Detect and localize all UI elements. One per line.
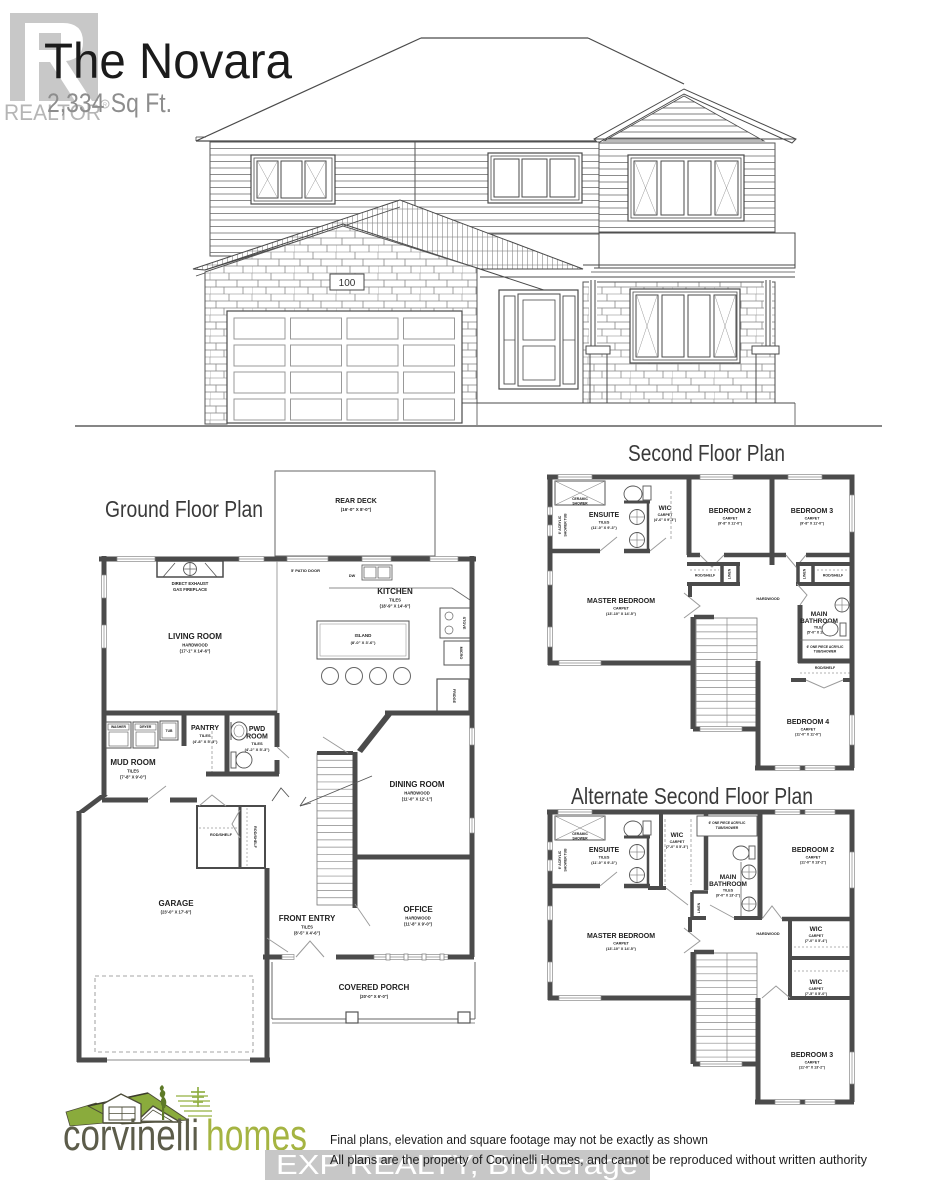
- svg-text:WASHER: WASHER: [111, 725, 126, 729]
- svg-text:ROD/SHELF: ROD/SHELF: [210, 833, 233, 837]
- svg-text:TILES: TILES: [599, 856, 610, 860]
- svg-text:BATHROOM: BATHROOM: [709, 881, 747, 888]
- svg-text:(11'-0" X 11'-0"): (11'-0" X 11'-0"): [795, 733, 822, 737]
- svg-text:TUB/SHOWER: TUB/SHOWER: [814, 650, 837, 654]
- svg-text:(11'-0" X 9'-3"): (11'-0" X 9'-3"): [591, 526, 617, 530]
- svg-text:DRYER: DRYER: [140, 725, 152, 729]
- svg-text:COVERED PORCH: COVERED PORCH: [339, 983, 410, 992]
- svg-text:MUD ROOM: MUD ROOM: [110, 758, 156, 767]
- svg-text:MASTER BEDROOM: MASTER BEDROOM: [587, 933, 655, 940]
- svg-text:TILES: TILES: [599, 521, 610, 525]
- svg-text:The Novara: The Novara: [44, 33, 292, 89]
- svg-text:CERAMIC: CERAMIC: [572, 832, 588, 836]
- svg-text:PWD: PWD: [249, 726, 265, 733]
- svg-text:100: 100: [339, 278, 356, 289]
- svg-text:(11'-8" X 9'-0"): (11'-8" X 9'-0"): [404, 922, 433, 927]
- svg-text:WIC: WIC: [810, 979, 823, 986]
- svg-text:ENSUITE: ENSUITE: [589, 847, 620, 854]
- svg-text:HARDWOOD: HARDWOOD: [182, 643, 208, 648]
- svg-text:ROD/SHELF: ROD/SHELF: [815, 666, 836, 670]
- svg-text:BEDROOM 2: BEDROOM 2: [792, 847, 835, 854]
- svg-text:Second Floor Plan: Second Floor Plan: [628, 440, 785, 466]
- svg-text:(11'-0" X 12'-1"): (11'-0" X 12'-1"): [402, 797, 433, 802]
- svg-text:5' PATIO DOOR: 5' PATIO DOOR: [291, 568, 320, 573]
- svg-text:(7'-8" X 9'-0"): (7'-8" X 9'-0"): [120, 775, 147, 780]
- svg-text:(9'-0" X 13'-2"): (9'-0" X 13'-2"): [716, 894, 741, 898]
- svg-text:(11'-0" X 9'-3"): (11'-0" X 9'-3"): [591, 861, 617, 865]
- svg-text:CARPET: CARPET: [613, 942, 629, 946]
- svg-text:6' ONE PIECE ACRYLIC: 6' ONE PIECE ACRYLIC: [807, 645, 844, 649]
- svg-text:REAR DECK: REAR DECK: [335, 498, 377, 505]
- svg-text:TILES: TILES: [199, 733, 211, 738]
- svg-text:ROD/SHELF: ROD/SHELF: [253, 826, 257, 849]
- svg-text:BEDROOM 4: BEDROOM 4: [787, 719, 830, 726]
- svg-text:(7'-0" X 5'-3"): (7'-0" X 5'-3"): [666, 845, 689, 849]
- svg-text:MAIN: MAIN: [811, 611, 828, 618]
- svg-text:WIC: WIC: [810, 926, 823, 933]
- svg-text:HARDWOOD: HARDWOOD: [756, 597, 779, 601]
- svg-text:(7'-5" X 5'-0"): (7'-5" X 5'-0"): [805, 992, 828, 996]
- svg-text:TILES: TILES: [251, 741, 263, 746]
- svg-text:CARPET: CARPET: [805, 1061, 821, 1065]
- svg-text:BEDROOM 3: BEDROOM 3: [791, 508, 834, 515]
- svg-text:(18'-9" X 14'-6"): (18'-9" X 14'-6"): [380, 604, 411, 609]
- svg-text:CARPET: CARPET: [613, 607, 629, 611]
- svg-text:TILES: TILES: [127, 769, 139, 774]
- svg-text:(13'-10" X 14'-5"): (13'-10" X 14'-5"): [606, 947, 637, 951]
- svg-text:(7'-0" X 5'-4"): (7'-0" X 5'-4"): [805, 939, 828, 943]
- svg-text:TUB/SHOWER: TUB/SHOWER: [716, 826, 739, 830]
- svg-text:CARPET: CARPET: [809, 987, 825, 991]
- svg-text:LINEN: LINEN: [728, 568, 732, 579]
- svg-text:Final plans, elevation and squ: Final plans, elevation and square footag…: [330, 1132, 708, 1147]
- svg-text:CARPET: CARPET: [806, 856, 822, 860]
- svg-text:ROD/SHELF: ROD/SHELF: [695, 574, 716, 578]
- svg-text:SHOWER TUB: SHOWER TUB: [564, 513, 568, 537]
- svg-text:FRIDGE: FRIDGE: [452, 689, 456, 704]
- svg-text:(9'-8" X 11'-0"): (9'-8" X 11'-0"): [718, 522, 743, 526]
- svg-text:Alternate Second Floor Plan: Alternate Second Floor Plan: [571, 783, 813, 809]
- svg-text:CARPET: CARPET: [801, 728, 817, 732]
- svg-text:SHOWER TUB: SHOWER TUB: [564, 848, 568, 872]
- svg-text:(23'-0" X 17'-6"): (23'-0" X 17'-6"): [161, 910, 192, 915]
- svg-text:GAS FIREPLACE: GAS FIREPLACE: [173, 587, 207, 592]
- svg-text:(13'-10" X 14'-5"): (13'-10" X 14'-5"): [606, 612, 637, 616]
- svg-text:HARDWOOD: HARDWOOD: [756, 932, 779, 936]
- svg-text:(4'-8" X 5'-3"): (4'-8" X 5'-3"): [193, 739, 218, 744]
- svg-text:(4'-6" X 9'-3"): (4'-6" X 9'-3"): [654, 518, 677, 522]
- svg-text:ISLAND: ISLAND: [355, 633, 373, 638]
- svg-text:DINING ROOM: DINING ROOM: [389, 780, 444, 789]
- svg-text:TUB: TUB: [166, 729, 174, 733]
- svg-text:MASTER BEDROOM: MASTER BEDROOM: [587, 598, 655, 605]
- svg-text:TILES: TILES: [723, 889, 734, 893]
- svg-text:(8'-5" X 4'-6"): (8'-5" X 4'-6"): [294, 931, 321, 936]
- svg-text:(4'-2" X 5'-3"): (4'-2" X 5'-3"): [245, 747, 270, 752]
- svg-text:6' ONE PIECE ACRYLIC: 6' ONE PIECE ACRYLIC: [709, 821, 746, 825]
- svg-text:HARDWOOD: HARDWOOD: [404, 791, 430, 796]
- svg-text:ENSUITE: ENSUITE: [589, 512, 620, 519]
- svg-text:CARPET: CARPET: [809, 934, 825, 938]
- svg-text:(11'-0" X 13'-2"): (11'-0" X 13'-2"): [799, 1066, 826, 1070]
- svg-text:CARPET: CARPET: [723, 517, 739, 521]
- svg-text:CARPET: CARPET: [670, 840, 686, 844]
- svg-text:WIC: WIC: [659, 505, 672, 512]
- svg-text:KITCHEN: KITCHEN: [377, 587, 413, 596]
- svg-text:TILES: TILES: [389, 598, 401, 603]
- svg-text:(9'-8" X 11'-0"): (9'-8" X 11'-0"): [800, 522, 825, 526]
- svg-text:LINEN: LINEN: [697, 902, 701, 913]
- svg-text:OFFICE: OFFICE: [403, 905, 433, 914]
- svg-text:(8'-0" X 3'-6"): (8'-0" X 3'-6"): [351, 640, 376, 645]
- svg-text:6' ACRYLIC: 6' ACRYLIC: [558, 850, 562, 869]
- svg-text:GARAGE: GARAGE: [158, 899, 194, 908]
- svg-text:ROOM: ROOM: [246, 734, 268, 741]
- svg-text:ROD/SHELF: ROD/SHELF: [823, 574, 844, 578]
- svg-text:WIC: WIC: [671, 832, 684, 839]
- svg-text:(20'-0" X 6'-0"): (20'-0" X 6'-0"): [360, 994, 389, 999]
- svg-text:SHOWER: SHOWER: [572, 502, 588, 506]
- svg-text:6' ACRYLIC: 6' ACRYLIC: [558, 515, 562, 534]
- svg-text:All plans are the property of: All plans are the property of Corvinelli…: [330, 1152, 867, 1167]
- svg-text:CARPET: CARPET: [805, 517, 821, 521]
- svg-text:LINEN: LINEN: [803, 568, 807, 579]
- svg-text:2,334 Sq Ft.: 2,334 Sq Ft.: [47, 88, 172, 118]
- svg-text:CERAMIC: CERAMIC: [572, 497, 588, 501]
- svg-text:STOVE: STOVE: [462, 617, 466, 630]
- svg-text:(17'-1" X 14'-6"): (17'-1" X 14'-6"): [180, 649, 211, 654]
- svg-text:(11'-0" X 13'-2"): (11'-0" X 13'-2"): [800, 861, 827, 865]
- svg-text:HARDWOOD: HARDWOOD: [405, 916, 431, 921]
- svg-text:BEDROOM 2: BEDROOM 2: [709, 508, 752, 515]
- svg-text:MICRO: MICRO: [459, 647, 463, 660]
- svg-text:corvinelli: corvinelli: [63, 1111, 199, 1160]
- svg-text:BEDROOM 3: BEDROOM 3: [791, 1052, 834, 1059]
- svg-text:TILES: TILES: [301, 925, 313, 930]
- svg-text:SHOWER: SHOWER: [572, 837, 588, 841]
- svg-text:LIVING ROOM: LIVING ROOM: [168, 632, 222, 641]
- svg-text:FRONT ENTRY: FRONT ENTRY: [279, 914, 336, 923]
- svg-text:Ground Floor Plan: Ground Floor Plan: [105, 496, 263, 522]
- svg-text:PANTRY: PANTRY: [191, 725, 219, 732]
- svg-text:MAIN: MAIN: [720, 874, 737, 881]
- svg-text:(16'-0" X 8'-0"): (16'-0" X 8'-0"): [341, 507, 372, 512]
- svg-text:DW: DW: [349, 574, 356, 578]
- svg-text:DIRECT EXHAUST: DIRECT EXHAUST: [172, 581, 209, 586]
